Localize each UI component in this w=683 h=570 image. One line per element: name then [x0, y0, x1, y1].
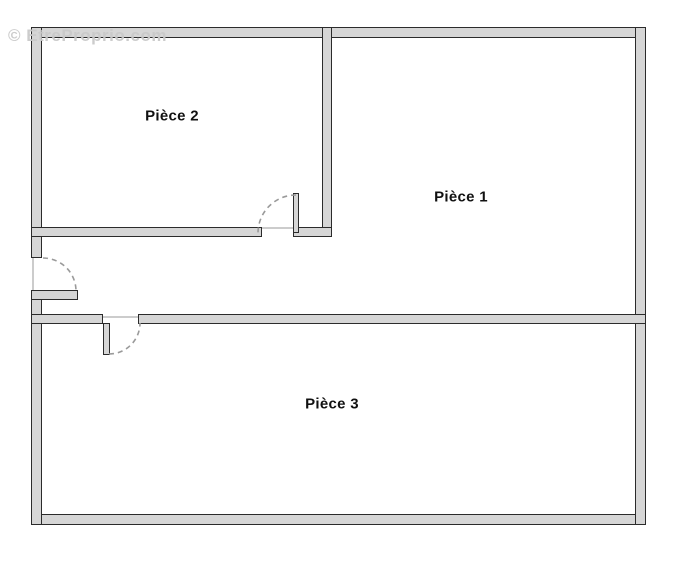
entrance-door-swing-arc	[43, 258, 76, 291]
site-watermark: © EtreProprio.com	[8, 26, 167, 46]
floor-plan: Pièce 2 Pièce 1 Pièce 3 © EtreProprio.co…	[0, 0, 683, 570]
piece3-door-swing-arc	[109, 323, 140, 354]
piece2-door-swing-arc	[258, 195, 296, 233]
door-swing-arcs	[0, 0, 683, 570]
